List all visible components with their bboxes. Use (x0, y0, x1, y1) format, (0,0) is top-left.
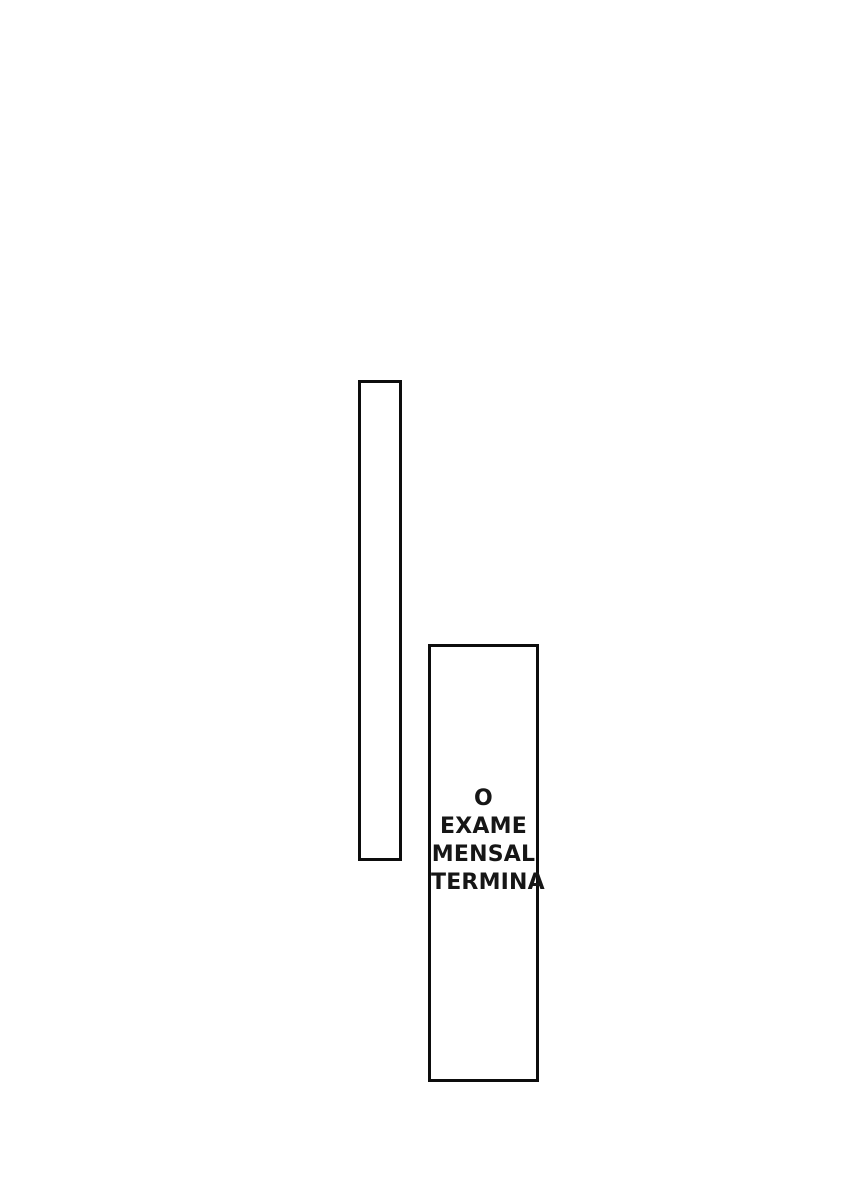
caption-panel: O EXAME MENSAL TERMINA (428, 644, 539, 1082)
caption-text: O EXAME MENSAL TERMINA (431, 785, 536, 897)
caption-line-3: MENSAL (431, 841, 536, 869)
empty-vertical-panel (358, 380, 402, 861)
caption-line-4: TERMINA (431, 869, 536, 897)
manga-page: O EXAME MENSAL TERMINA (0, 0, 850, 1204)
caption-line-1: O (431, 785, 536, 813)
caption-line-2: EXAME (431, 813, 536, 841)
